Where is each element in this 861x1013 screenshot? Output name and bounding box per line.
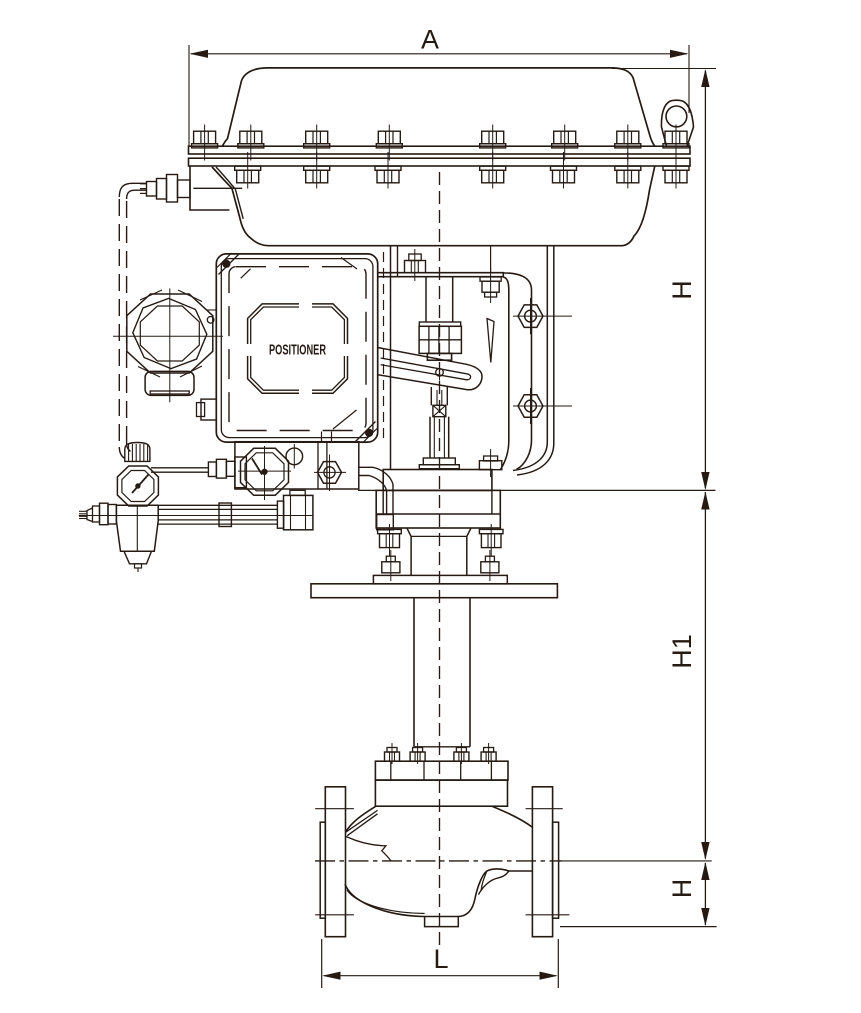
svg-text:L: L (433, 944, 448, 974)
svg-text:A: A (421, 25, 439, 55)
svg-text:POSITIONER: POSITIONER (269, 342, 326, 359)
svg-text:H: H (667, 280, 697, 300)
svg-text:H1: H1 (667, 634, 697, 669)
svg-text:H: H (667, 879, 697, 899)
